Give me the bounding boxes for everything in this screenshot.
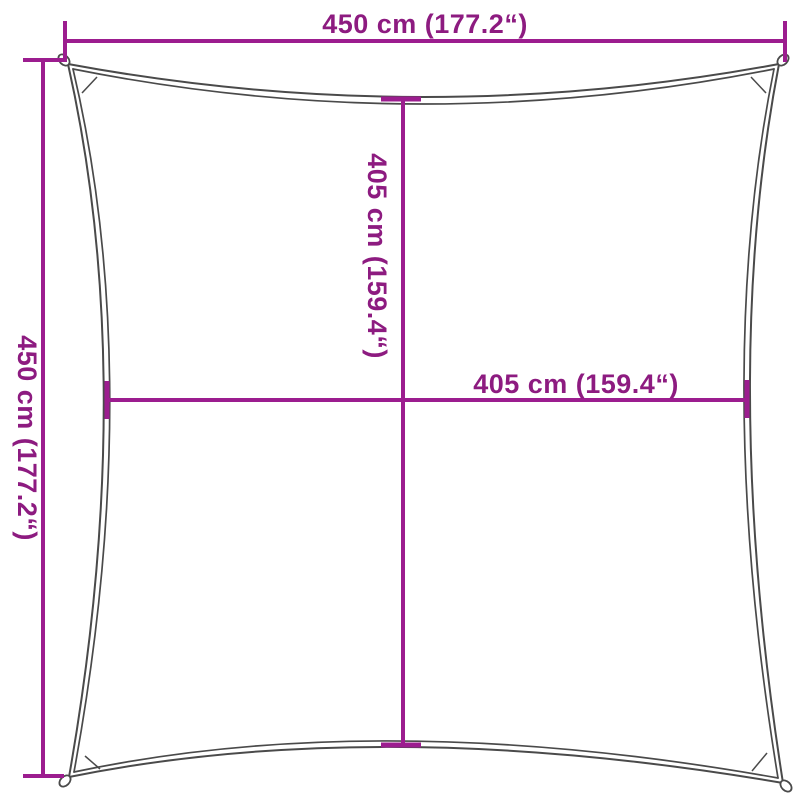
dimension-diagram: 450 cm (177.2“) 450 cm (177.2“) 405 cm (… [0,0,800,800]
corner-patch-top-right [751,77,766,93]
label-outer-width: 450 cm (177.2“) [322,9,528,39]
label-inner-height: 405 cm (159.4“) [362,153,392,359]
dimension-labels: 450 cm (177.2“) 450 cm (177.2“) 405 cm (… [12,9,679,541]
sail-edge-right-outer [750,64,783,783]
label-outer-height: 450 cm (177.2“) [12,335,42,541]
sail-edge-top-inner [73,69,774,104]
corner-patch-bottom-left [85,756,100,769]
shade-sail-dimension-drawing: 450 cm (177.2“) 450 cm (177.2“) 405 cm (… [0,0,800,800]
shade-sail-outline [56,52,794,794]
sail-edge-bottom-outer [69,747,783,783]
sail-edge-left-outer [68,64,104,777]
corner-patch-bottom-right [752,753,767,771]
sail-edge-top-outer [68,64,779,97]
corner-ring-bottom-right [778,778,794,794]
label-inner-width: 405 cm (159.4“) [473,369,679,399]
corner-patch-top-left [82,77,97,93]
